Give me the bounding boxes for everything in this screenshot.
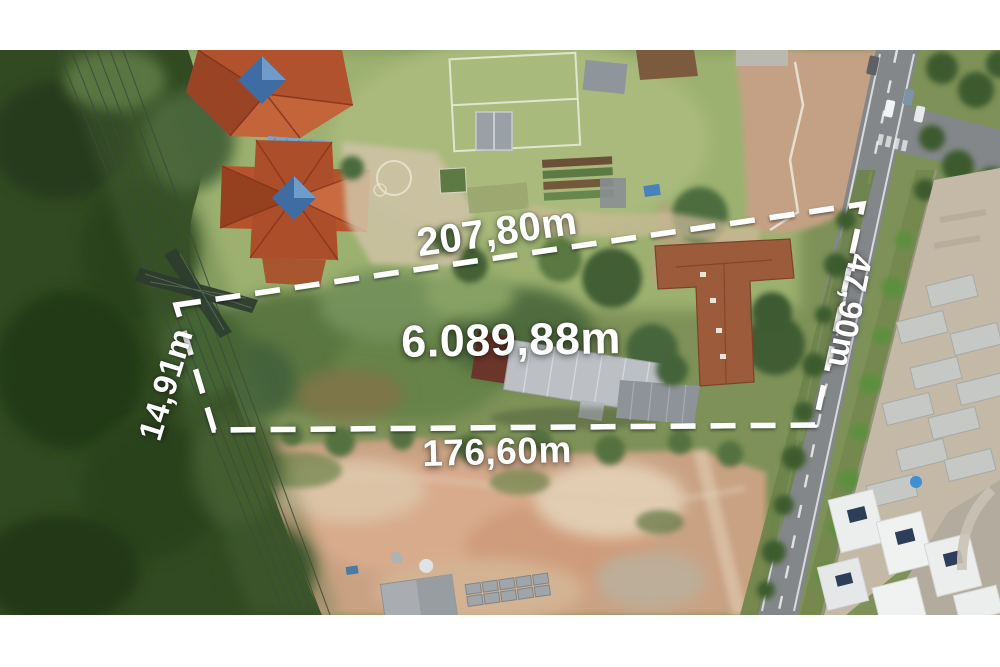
measurement-bottom-edge: 176,60m	[366, 420, 627, 483]
measurement-area: 6.089,88m	[365, 304, 656, 373]
letterbox-top	[0, 0, 1000, 50]
listing-photo-canvas: 207,80m 6.089,88m 176,60m 14,91m 47,90m	[0, 0, 1000, 667]
sports-court	[450, 53, 581, 151]
letterbox-bottom	[0, 615, 1000, 667]
aerial-photo: 207,80m 6.089,88m 176,60m 14,91m 47,90m	[0, 50, 1000, 615]
small-pool	[910, 476, 922, 488]
